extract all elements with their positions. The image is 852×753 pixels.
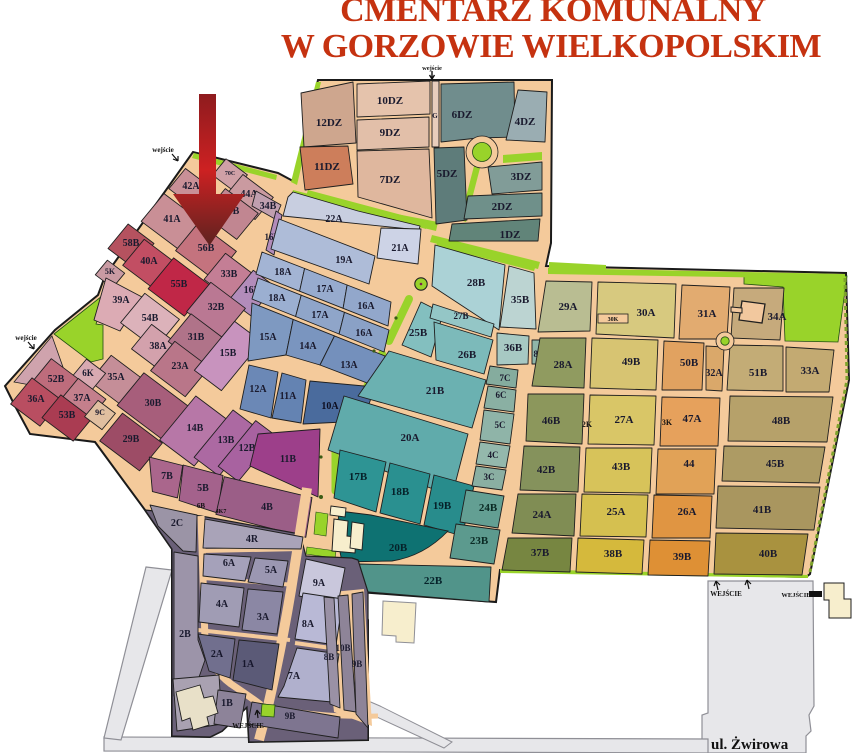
svg-text:12A: 12A (249, 384, 267, 395)
svg-text:9A: 9A (313, 578, 326, 589)
svg-text:22A: 22A (325, 214, 343, 225)
svg-text:36B: 36B (504, 342, 523, 354)
svg-text:39B: 39B (673, 551, 692, 563)
svg-text:33A: 33A (801, 365, 820, 377)
svg-text:3C: 3C (484, 472, 495, 482)
svg-text:5DZ: 5DZ (437, 168, 458, 180)
svg-text:18A: 18A (274, 267, 292, 278)
svg-text:4C: 4C (488, 450, 499, 460)
svg-text:4A: 4A (216, 599, 229, 610)
svg-text:40B: 40B (759, 548, 778, 560)
svg-text:30B: 30B (145, 398, 162, 409)
svg-text:2C: 2C (171, 518, 183, 529)
svg-text:11DZ: 11DZ (314, 161, 340, 173)
svg-text:10B: 10B (335, 643, 350, 653)
svg-text:41A: 41A (163, 214, 181, 225)
svg-text:48B: 48B (772, 415, 791, 427)
svg-text:17A: 17A (316, 284, 334, 295)
svg-text:16A: 16A (355, 328, 373, 339)
svg-text:53B: 53B (59, 410, 76, 421)
svg-text:4K7: 4K7 (216, 509, 227, 515)
svg-text:4DZ: 4DZ (515, 116, 536, 128)
svg-text:6DZ: 6DZ (452, 109, 473, 121)
svg-text:14B: 14B (187, 423, 204, 434)
svg-text:33B: 33B (221, 269, 238, 280)
svg-text:2DZ: 2DZ (492, 201, 513, 213)
svg-text:9B: 9B (352, 659, 363, 669)
svg-text:15A: 15A (259, 332, 277, 343)
svg-text:51B: 51B (749, 367, 768, 379)
svg-text:1B: 1B (221, 698, 233, 709)
svg-text:32B: 32B (208, 302, 225, 313)
svg-text:2K: 2K (582, 420, 593, 429)
svg-text:19B: 19B (433, 500, 452, 512)
svg-text:25A: 25A (607, 506, 626, 518)
svg-text:2A: 2A (211, 649, 224, 660)
svg-text:13A: 13A (340, 360, 358, 371)
svg-text:7A: 7A (288, 671, 301, 682)
svg-text:6B: 6B (197, 502, 206, 510)
svg-text:7C: 7C (500, 373, 511, 383)
svg-text:7B: 7B (161, 471, 173, 482)
svg-text:2B: 2B (179, 629, 191, 640)
svg-text:21A: 21A (391, 243, 409, 254)
svg-text:4R: 4R (246, 534, 259, 545)
svg-text:36A: 36A (27, 394, 45, 405)
svg-text:31A: 31A (698, 308, 717, 320)
svg-text:23B: 23B (470, 535, 489, 547)
svg-text:wejście: wejście (152, 146, 173, 154)
svg-text:3DZ: 3DZ (511, 171, 532, 183)
svg-text:34B: 34B (260, 201, 277, 212)
svg-text:5K: 5K (105, 267, 116, 276)
svg-text:22B: 22B (424, 575, 443, 587)
svg-text:27A: 27A (615, 414, 634, 426)
svg-text:3A: 3A (257, 612, 270, 623)
svg-text:29B: 29B (123, 434, 140, 445)
svg-text:wejście: wejście (422, 65, 442, 72)
svg-text:56B: 56B (198, 243, 215, 254)
svg-text:5A: 5A (265, 565, 278, 576)
svg-text:5B: 5B (197, 483, 209, 494)
svg-text:70C: 70C (225, 171, 235, 177)
svg-text:35A: 35A (107, 372, 125, 383)
svg-text:32A: 32A (705, 368, 723, 379)
svg-text:52B: 52B (48, 374, 65, 385)
svg-text:19A: 19A (335, 255, 353, 266)
svg-text:14A: 14A (299, 341, 317, 352)
svg-text:24B: 24B (479, 502, 498, 514)
svg-text:30A: 30A (637, 307, 656, 319)
svg-text:20B: 20B (389, 542, 408, 554)
svg-text:3K: 3K (662, 418, 673, 427)
svg-text:WEJŚCIE: WEJŚCIE (781, 591, 810, 599)
svg-text:54B: 54B (142, 313, 159, 324)
svg-text:49B: 49B (622, 356, 641, 368)
svg-text:46B: 46B (542, 415, 561, 427)
svg-text:WEJŚCIE: WEJŚCIE (710, 590, 742, 598)
svg-text:9DZ: 9DZ (380, 127, 401, 139)
svg-text:1A: 1A (242, 659, 255, 670)
svg-text:42A: 42A (182, 181, 200, 192)
svg-text:41B: 41B (753, 504, 772, 516)
svg-text:28B: 28B (467, 277, 486, 289)
svg-text:24A: 24A (533, 509, 552, 521)
svg-text:9B: 9B (285, 711, 296, 721)
svg-text:31B: 31B (188, 332, 205, 343)
svg-text:8B: 8B (324, 652, 335, 662)
svg-text:38A: 38A (149, 341, 167, 352)
svg-text:17A: 17A (311, 310, 329, 321)
svg-text:12DZ: 12DZ (316, 117, 342, 129)
svg-text:17B: 17B (349, 471, 368, 483)
svg-text:11B: 11B (280, 454, 296, 465)
svg-text:18A: 18A (268, 293, 286, 304)
svg-text:21B: 21B (426, 385, 445, 397)
svg-text:26B: 26B (458, 349, 477, 361)
svg-text:37B: 37B (531, 547, 550, 559)
svg-text:39A: 39A (112, 295, 130, 306)
svg-text:34A: 34A (768, 311, 787, 323)
svg-text:13B: 13B (218, 435, 235, 446)
svg-text:6C: 6C (496, 390, 507, 400)
svg-text:6K: 6K (82, 368, 94, 378)
svg-text:ul. Żwirowa: ul. Żwirowa (711, 736, 789, 753)
svg-text:50B: 50B (680, 357, 699, 369)
svg-text:29A: 29A (559, 301, 578, 313)
svg-text:18B: 18B (391, 486, 410, 498)
svg-text:43B: 43B (612, 461, 631, 473)
svg-text:9C: 9C (95, 408, 105, 417)
svg-text:20A: 20A (401, 432, 420, 444)
svg-text:10A: 10A (321, 401, 339, 412)
svg-text:1DZ: 1DZ (500, 229, 521, 241)
svg-text:23A: 23A (171, 361, 189, 372)
svg-text:55B: 55B (171, 279, 188, 290)
svg-text:40A: 40A (140, 256, 158, 267)
svg-text:37A: 37A (73, 393, 91, 404)
svg-text:10DZ: 10DZ (377, 95, 403, 107)
svg-text:8A: 8A (302, 619, 315, 630)
svg-text:4B: 4B (261, 502, 273, 513)
svg-text:38B: 38B (604, 548, 623, 560)
svg-text:45B: 45B (766, 458, 785, 470)
svg-text:wejście: wejście (15, 334, 36, 342)
svg-text:7DZ: 7DZ (380, 174, 401, 186)
svg-text:WEJŚCIE: WEJŚCIE (232, 722, 264, 730)
svg-text:44: 44 (684, 458, 696, 470)
svg-text:5C: 5C (495, 420, 506, 430)
svg-text:15B: 15B (220, 348, 237, 359)
svg-text:G: G (432, 112, 438, 120)
svg-text:30K: 30K (608, 317, 619, 323)
svg-text:47A: 47A (683, 413, 702, 425)
svg-text:25B: 25B (409, 327, 428, 339)
svg-text:26A: 26A (678, 506, 697, 518)
svg-text:27B: 27B (453, 311, 468, 321)
svg-text:35B: 35B (511, 294, 530, 306)
svg-text:28A: 28A (554, 359, 573, 371)
svg-text:16A: 16A (357, 301, 375, 312)
svg-text:42B: 42B (537, 464, 556, 476)
svg-text:6A: 6A (223, 558, 236, 569)
svg-text:11A: 11A (280, 391, 297, 402)
